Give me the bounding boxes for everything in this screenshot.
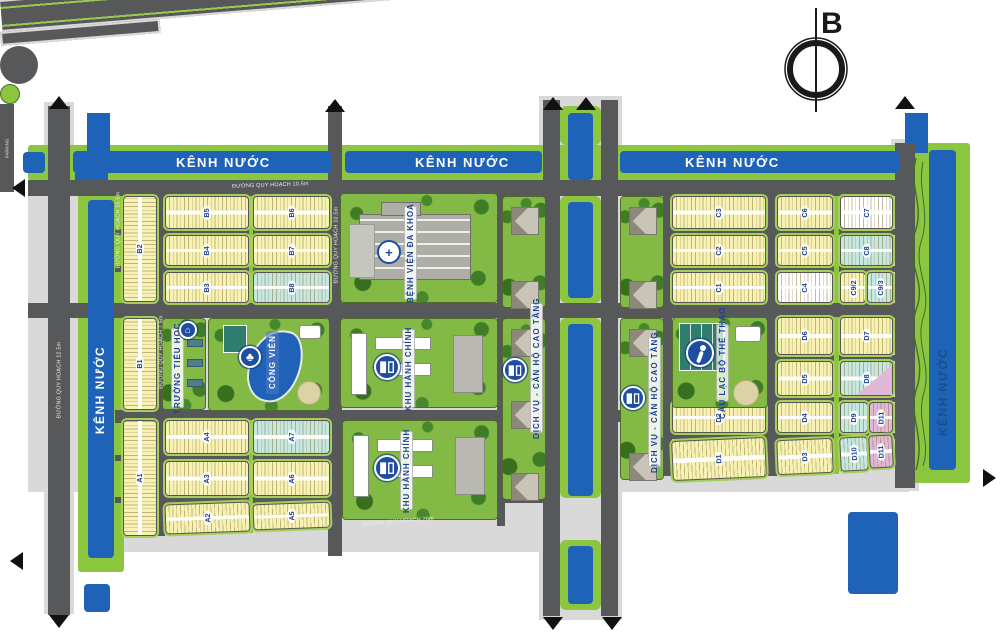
lot-block-d4: D4	[777, 402, 833, 433]
park-icon: ♣	[239, 346, 261, 368]
canal-water	[848, 512, 898, 594]
roundabout-island	[0, 84, 20, 104]
lot-block-label: D9	[850, 410, 858, 424]
lot-block-a2: A2	[165, 502, 251, 535]
facility-label-sports-club: CÂU LẠC BỘ THỂ THAO	[716, 324, 729, 402]
direction-arrow-down	[49, 615, 69, 628]
direction-arrow-up	[325, 99, 345, 112]
canal-label: KÊNH NƯỚC	[93, 346, 107, 434]
lot-block-b4: B4	[165, 235, 249, 266]
road	[895, 143, 915, 488]
villa-building	[629, 207, 657, 235]
lot-block-c7: C7	[840, 196, 893, 229]
lot-block-d6: D6	[777, 317, 833, 355]
road	[601, 100, 618, 616]
facility-villas-ne	[620, 196, 664, 308]
lot-block-a6: A6	[253, 461, 330, 496]
road-label: ĐƯỜNG QUY HOẠCH 10.5m	[333, 207, 339, 284]
lot-block-a7: A7	[253, 420, 330, 454]
lot-block-b5: B5	[165, 196, 249, 229]
direction-arrow-up	[49, 96, 69, 109]
lot-block-d8: D8	[840, 361, 893, 396]
lot-block-d9: D9	[840, 402, 868, 433]
lot-block-b7: B7	[253, 235, 330, 266]
school-building	[187, 379, 203, 387]
lot-block-label: B6	[287, 205, 295, 219]
lot-block-label: B7	[287, 243, 295, 257]
facility-label-villas-sw: DỊCH VỤ - CĂN HỘ CAO TẦNG	[530, 303, 543, 433]
lot-block-label: C3	[715, 205, 723, 219]
direction-arrow-up	[543, 97, 563, 110]
lot-block-b6: B6	[253, 196, 330, 229]
direction-arrow-left	[12, 179, 25, 197]
facility-label-school: TRƯỜNG TIỂU HỌC	[171, 328, 184, 408]
lot-block-c5: C5	[777, 235, 833, 266]
villas-sw-icon: ▮▯	[503, 358, 527, 382]
villa-building	[511, 473, 539, 501]
road	[48, 575, 70, 615]
lot-block-label: B8	[287, 280, 295, 294]
facility-admin-1	[340, 318, 498, 408]
canal-water	[23, 152, 45, 173]
lot-block-c3: C3	[672, 196, 766, 229]
lot-block-label: C6	[801, 205, 809, 219]
road-label: ĐƯỜNG QUY HOẠCH 12.5m	[56, 342, 62, 419]
admin-2-icon: ▮▯	[374, 455, 400, 481]
canal-water	[568, 546, 593, 604]
lot-block-d5: D5	[777, 361, 833, 396]
lot-block-b1: B1	[123, 318, 157, 410]
facility-label-admin-2: KHU HÀNH CHÍNH	[400, 431, 413, 510]
lot-block-d7: D7	[840, 317, 893, 355]
lot-block-label: C5	[801, 243, 809, 257]
canal-water	[84, 584, 110, 612]
lot-block-label: A7	[287, 430, 295, 444]
lot-block-label: A6	[287, 471, 295, 485]
lot-block-label: B1	[136, 357, 144, 371]
facility-structure	[349, 224, 375, 278]
facility-label-admin-1: KHU HÀNH CHÍNH	[402, 329, 415, 408]
lot-block-label: D4	[801, 410, 809, 424]
sand-plaza	[733, 380, 759, 406]
direction-arrow-right	[983, 469, 996, 487]
lot-block-label: D1	[715, 452, 724, 466]
canal-label: KÊNH NƯỚC	[685, 155, 780, 170]
lot-block-b2: B2	[123, 196, 157, 302]
road-label: ĐƯỜNG QUY HOẠCH 7.5m	[158, 315, 164, 388]
facility-label-villas-se: DỊCH VỤ - CĂN HỘ CAO TẦNG	[648, 337, 661, 467]
lot-block-label: B2	[136, 242, 144, 256]
school-building	[187, 339, 203, 347]
direction-arrow-down	[602, 617, 622, 630]
road-label: ĐƯỜNG QUY HOẠCH 10.5m	[115, 192, 121, 269]
canal-water	[568, 113, 593, 180]
facility-hospital	[340, 193, 498, 303]
lot-block-label: B5	[203, 205, 211, 219]
lot-block-label: D3	[801, 449, 810, 463]
canal-water	[87, 113, 110, 153]
park-building	[299, 325, 321, 339]
lot-block-a1: A1	[123, 420, 157, 536]
lot-block-a3: A3	[165, 461, 249, 496]
lot-block-c9-3: C9/3	[867, 272, 893, 303]
lot-block-a4: A4	[165, 420, 249, 454]
villa-building	[511, 207, 539, 235]
direction-arrow-down	[543, 617, 563, 630]
school-icon: ⌂	[179, 321, 197, 339]
admin-1-icon: ▮▯	[374, 354, 400, 380]
lot-block-label: D8	[862, 371, 870, 385]
sports-club-icon	[686, 339, 714, 367]
lot-block-label: A1	[136, 471, 144, 485]
lot-block-label: C2	[715, 243, 723, 257]
lot-block-c4: C4	[777, 272, 833, 303]
lot-block-label: B3	[203, 280, 211, 294]
school-building	[187, 359, 203, 367]
lot-block-label: A3	[203, 471, 211, 485]
canal-label: KÊNH NƯỚC	[415, 155, 510, 170]
lot-block-label: C8	[862, 243, 870, 257]
club-building	[735, 326, 761, 342]
block-divider-green	[834, 196, 839, 303]
lot-block-a5: A5	[253, 502, 331, 531]
lot-block-label: D6	[801, 329, 809, 343]
parking-label: PARKING	[5, 138, 9, 157]
person-glyph-body	[696, 351, 704, 364]
lot-block-label: C4	[801, 280, 809, 294]
lot-block-d3: D3	[776, 438, 833, 475]
facility-label-hospital: BỆNH VIỆN ĐA KHOA	[404, 206, 417, 300]
facility-structure	[351, 333, 367, 395]
lot-block-d1: D1	[671, 437, 767, 481]
lot-block-label: B4	[203, 243, 211, 257]
road	[663, 196, 672, 476]
lot-block-label: A2	[203, 511, 211, 525]
direction-arrow-up	[576, 97, 596, 110]
facility-label-park: CÔNG VIÊN	[266, 331, 279, 394]
lot-block-label: C9/3	[876, 277, 884, 297]
roundabout	[0, 46, 38, 84]
master-plan-map: B2B5B6B4B7B3B8B1A1A4A7A3A6A2A5C3C6C7C2C5…	[0, 0, 1000, 634]
canal-water	[568, 202, 593, 298]
lot-block-label: D11	[877, 409, 885, 427]
direction-arrow-up	[895, 96, 915, 109]
direction-arrow-left	[10, 552, 23, 570]
lot-block-c9-2: C9/2	[840, 272, 866, 303]
villa-building	[629, 281, 657, 309]
lot-block-label: C7	[862, 205, 870, 219]
canal-label: KÊNH NƯỚC	[176, 155, 271, 170]
lot-block-d11: D11	[869, 402, 893, 433]
facility-structure	[353, 435, 369, 497]
lot-block-c8: C8	[840, 235, 893, 266]
lot-block-label: D11	[877, 442, 886, 460]
facility-structure	[455, 437, 485, 495]
lot-block-label: C9/2	[849, 277, 857, 297]
lot-block-label: A4	[203, 430, 211, 444]
lot-block-label: D7	[862, 329, 870, 343]
lot-block-d10: D10	[839, 436, 869, 471]
villas-se-icon: ▮▯	[621, 386, 645, 410]
lot-block-b3: B3	[165, 272, 249, 303]
facility-villas-nw	[502, 196, 546, 308]
lot-block-label: C1	[715, 280, 723, 294]
lot-block-b8: B8	[253, 272, 330, 303]
lot-block-c2: C2	[672, 235, 766, 266]
lot-block-label: D10	[850, 445, 859, 463]
facility-structure	[453, 335, 483, 393]
facility-admin-2	[342, 420, 498, 520]
lot-block-label: A5	[287, 509, 295, 523]
canal-water	[568, 324, 593, 496]
block-divider-green	[834, 317, 839, 474]
sand-plaza	[297, 381, 321, 405]
hospital-icon: +	[377, 240, 401, 264]
lot-block-label: D5	[801, 371, 809, 385]
canal-label: KÊNH NƯỚC	[936, 348, 950, 436]
lot-block-c6: C6	[777, 196, 833, 229]
lot-block-c1: C1	[672, 272, 766, 303]
lot-block-d11: D11	[868, 434, 894, 468]
